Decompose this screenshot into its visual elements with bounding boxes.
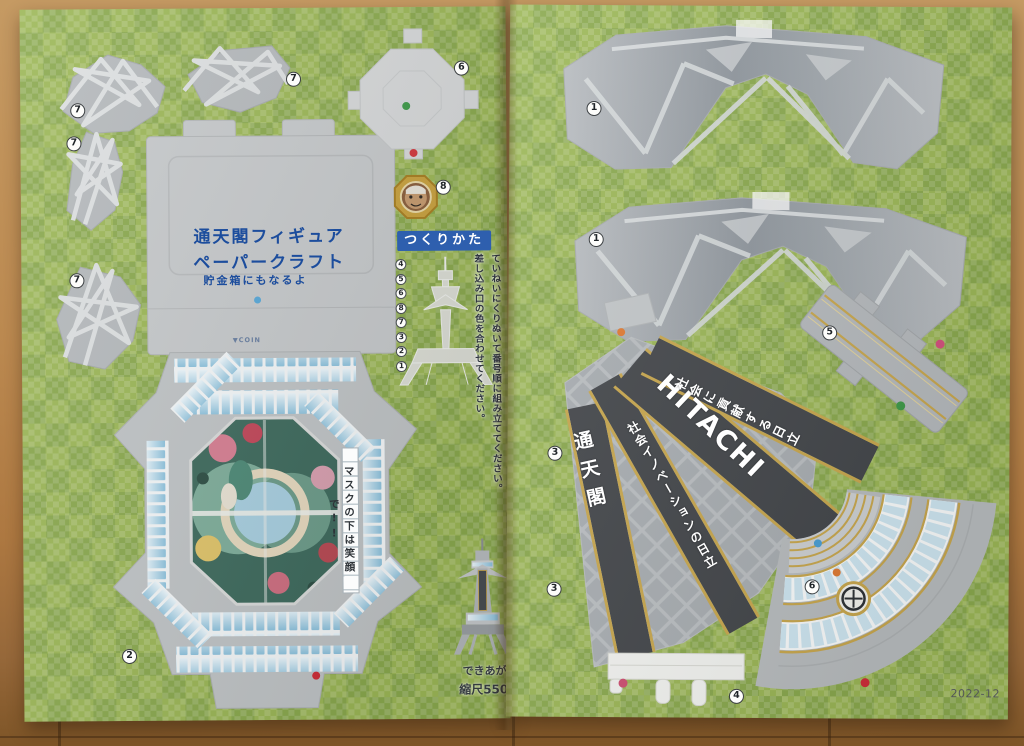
howto-step-number: 1 <box>396 361 407 372</box>
piece-number-badge: 8 <box>436 180 451 195</box>
piece-number-badge: 7 <box>66 136 81 151</box>
marker-dot-pink <box>936 340 945 349</box>
right-page: 通天閣 社会イノベーションの日立 HITACHI 社会に貢献する日立 1 1 5… <box>506 4 1012 719</box>
howto-step-number: 4 <box>395 259 406 270</box>
octagon-floral-art <box>190 417 339 604</box>
howto-title: つくりかた <box>397 230 491 251</box>
piece-number-badge: 3 <box>547 582 562 597</box>
piece-star-b <box>184 46 290 113</box>
coin-slot-label: ▼COIN <box>207 336 287 345</box>
marker-dot-red <box>861 678 870 687</box>
piece-number-badge: 6 <box>454 61 469 76</box>
piece-number-badge: 7 <box>286 72 301 87</box>
photo-papercraft-spread: 通天閣フィギュア ペーパークラフト 貯金箱にもなるよ ▼COIN つくりかた 4… <box>0 0 1024 746</box>
kit-subtitle: 貯金箱にもなるよ <box>155 271 355 288</box>
left-page-artwork <box>20 6 511 721</box>
date-code: 2022-12 <box>936 687 1000 700</box>
booklet-spine-shadow <box>494 0 518 730</box>
marker-dot-green <box>896 401 905 410</box>
piece-number-badge: 7 <box>70 103 85 118</box>
marker-dot-orange <box>833 568 841 576</box>
piece-number-badge: 6 <box>805 579 820 594</box>
howto-step-number: 6 <box>395 288 406 299</box>
marker-dot-blue <box>814 539 822 547</box>
instruction-line: 差し込み口の色を合わせてください。 <box>469 253 488 493</box>
piece-number-badge: 7 <box>69 273 84 288</box>
piece-number-badge: 2 <box>122 649 137 664</box>
piece-base-unfold <box>112 350 422 709</box>
piece-star-a <box>61 55 166 134</box>
piece-number-badge: 5 <box>822 325 837 340</box>
kit-title-line1: 通天閣フィギュア <box>144 221 394 248</box>
clock-emblem-icon <box>837 582 869 614</box>
mask-message: マスクの下は笑顔で!! <box>342 447 360 593</box>
wood-plank-line <box>0 736 1024 738</box>
howto-step-number: 8 <box>396 303 407 314</box>
howto-step-number: 5 <box>395 274 406 285</box>
howto-step-number: 7 <box>396 317 407 328</box>
howto-step-list: 4 5 6 8 7 3 2 1 <box>395 259 407 372</box>
kit-title-line2: ペーパークラフト <box>144 247 394 274</box>
piece-leg-a <box>563 19 944 171</box>
piece-number-badge: 1 <box>586 101 601 116</box>
piece-comb <box>608 653 744 706</box>
right-page-artwork <box>506 4 1012 719</box>
piece-number-badge: 3 <box>547 446 562 461</box>
howto-step-number: 2 <box>396 346 407 357</box>
piece-number-badge: 4 <box>729 689 744 704</box>
left-page: 通天閣フィギュア ペーパークラフト 貯金箱にもなるよ ▼COIN つくりかた 4… <box>20 6 511 721</box>
howto-step-number: 3 <box>396 332 407 343</box>
piece-number-badge: 1 <box>589 232 604 247</box>
piece-medal <box>395 176 437 218</box>
